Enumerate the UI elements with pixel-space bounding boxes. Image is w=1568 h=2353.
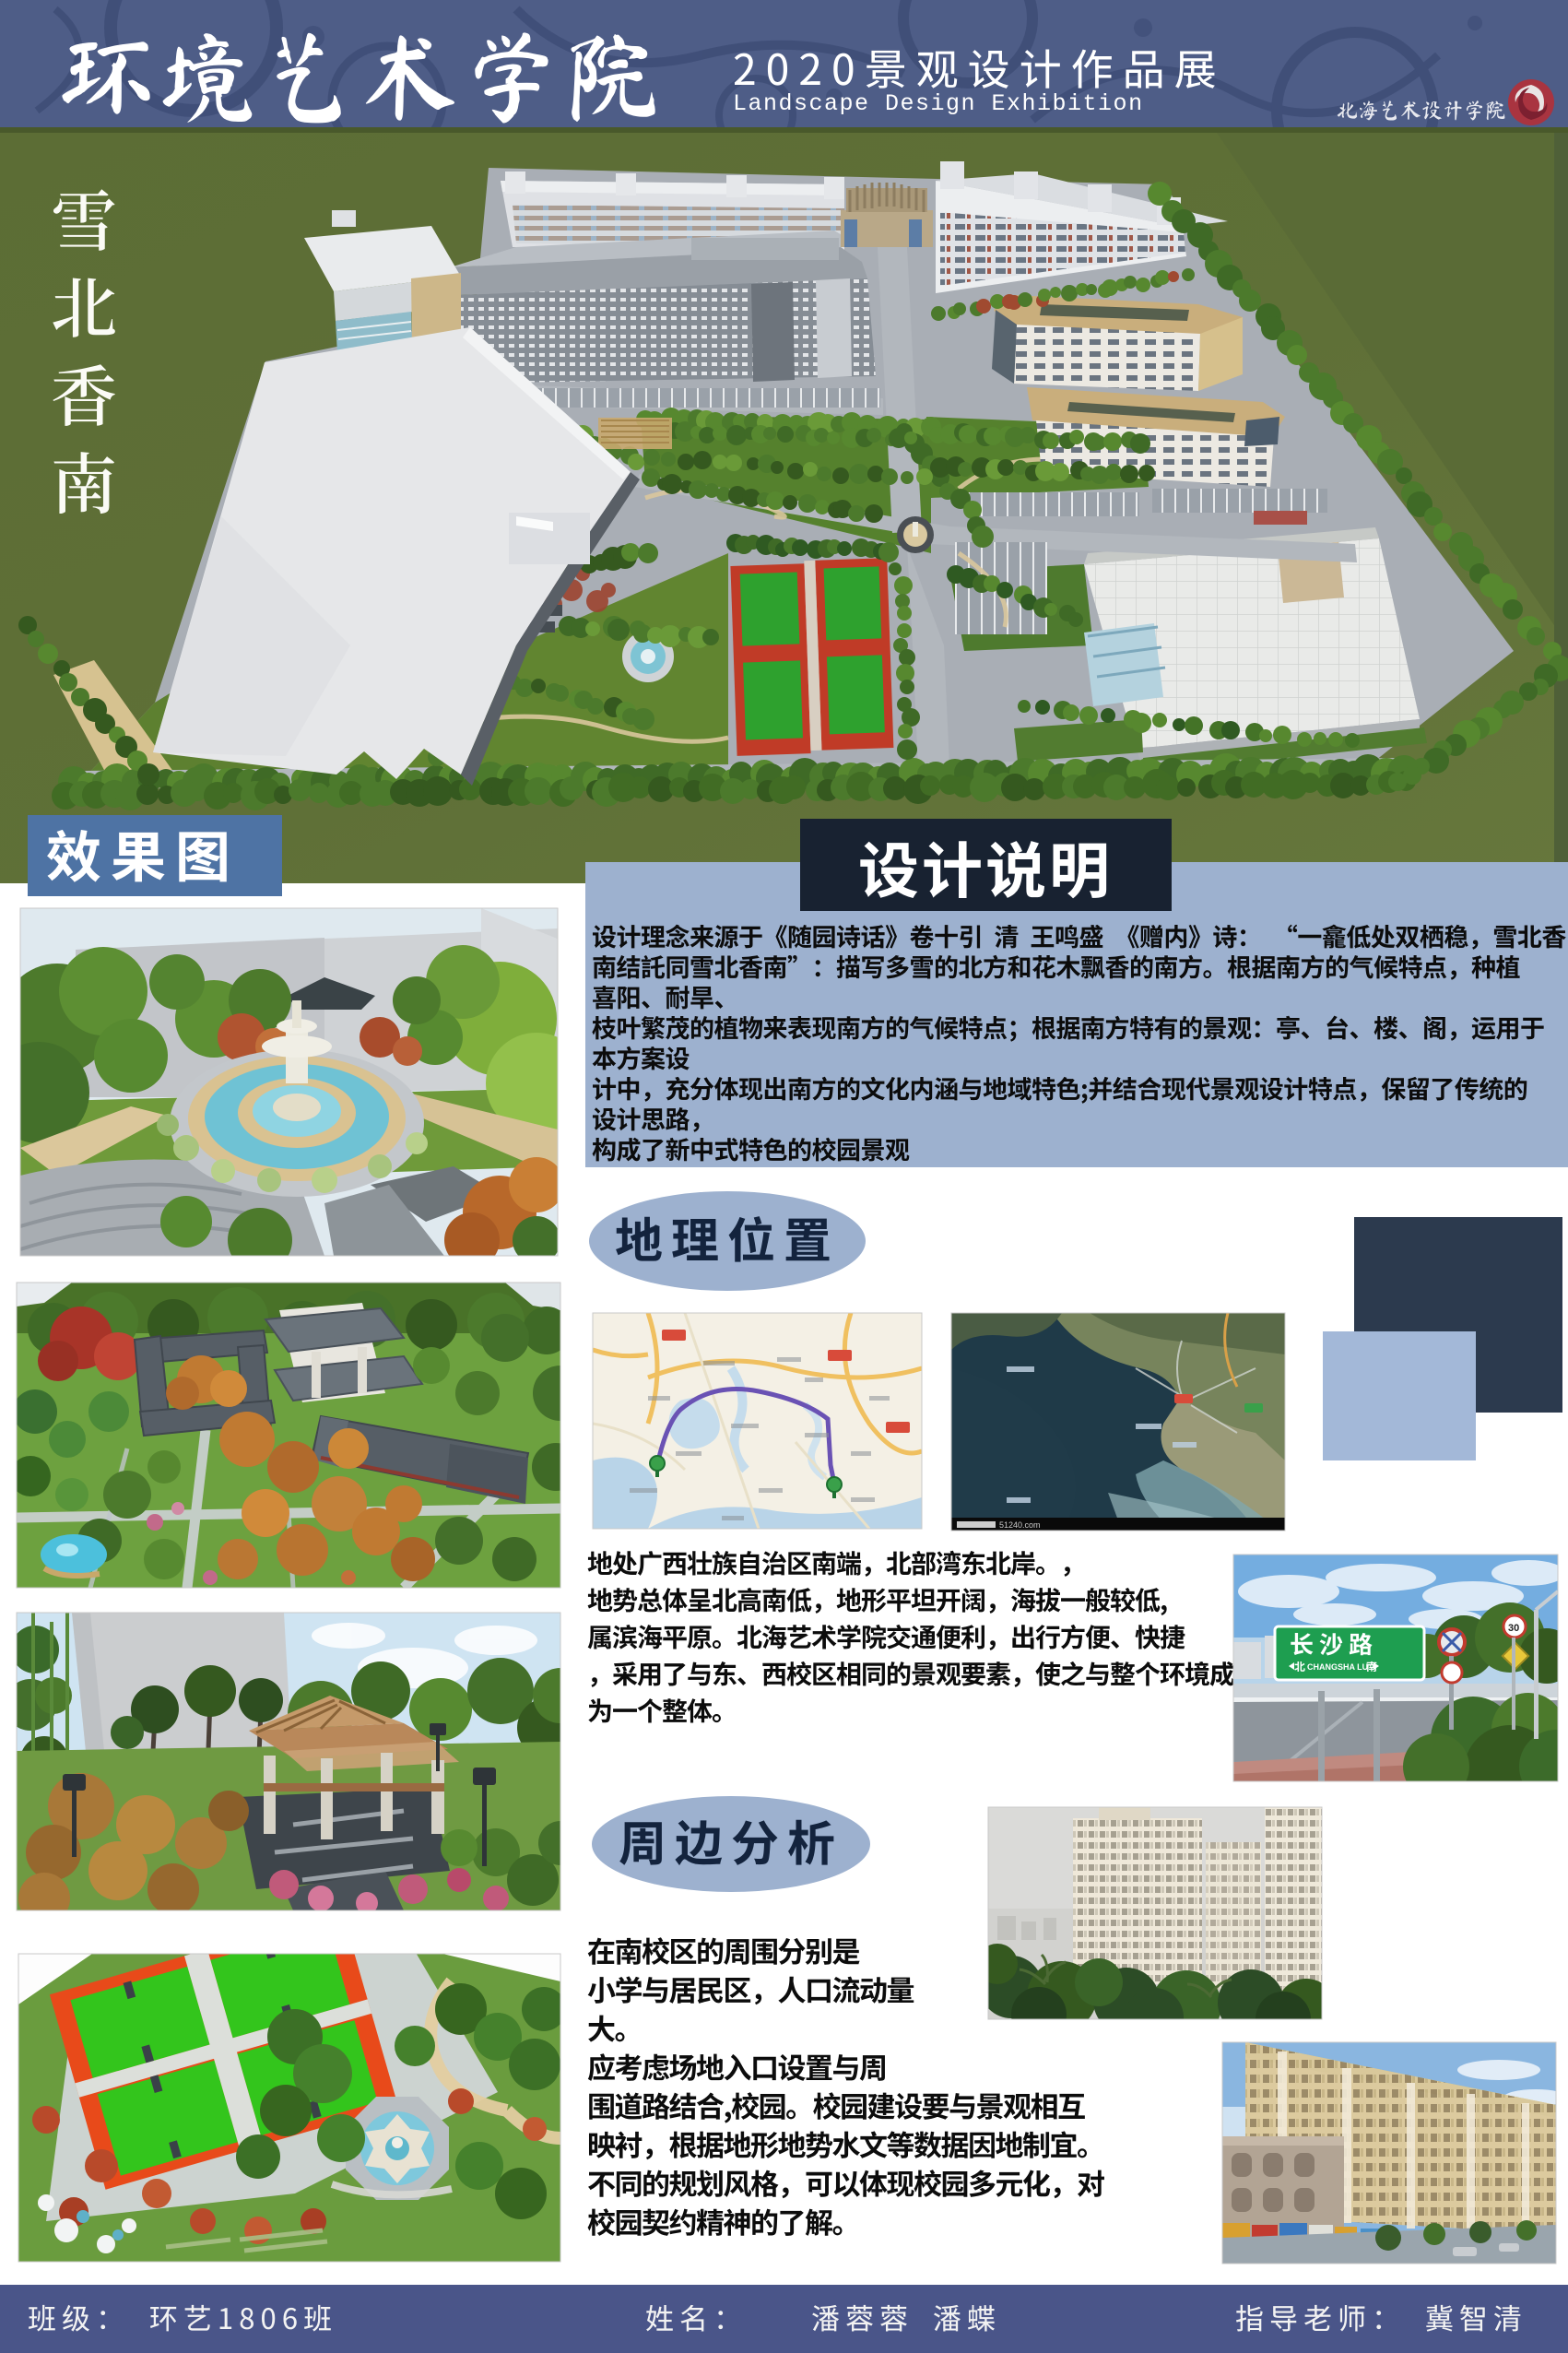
svg-text:30: 30 [1508, 1623, 1519, 1634]
svg-text:CHANGSHA LU: CHANGSHA LU [1307, 1662, 1368, 1672]
svg-text:51240.com: 51240.com [999, 1520, 1041, 1530]
svg-text:Landscape Design Exhibition: Landscape Design Exhibition [733, 90, 1144, 117]
